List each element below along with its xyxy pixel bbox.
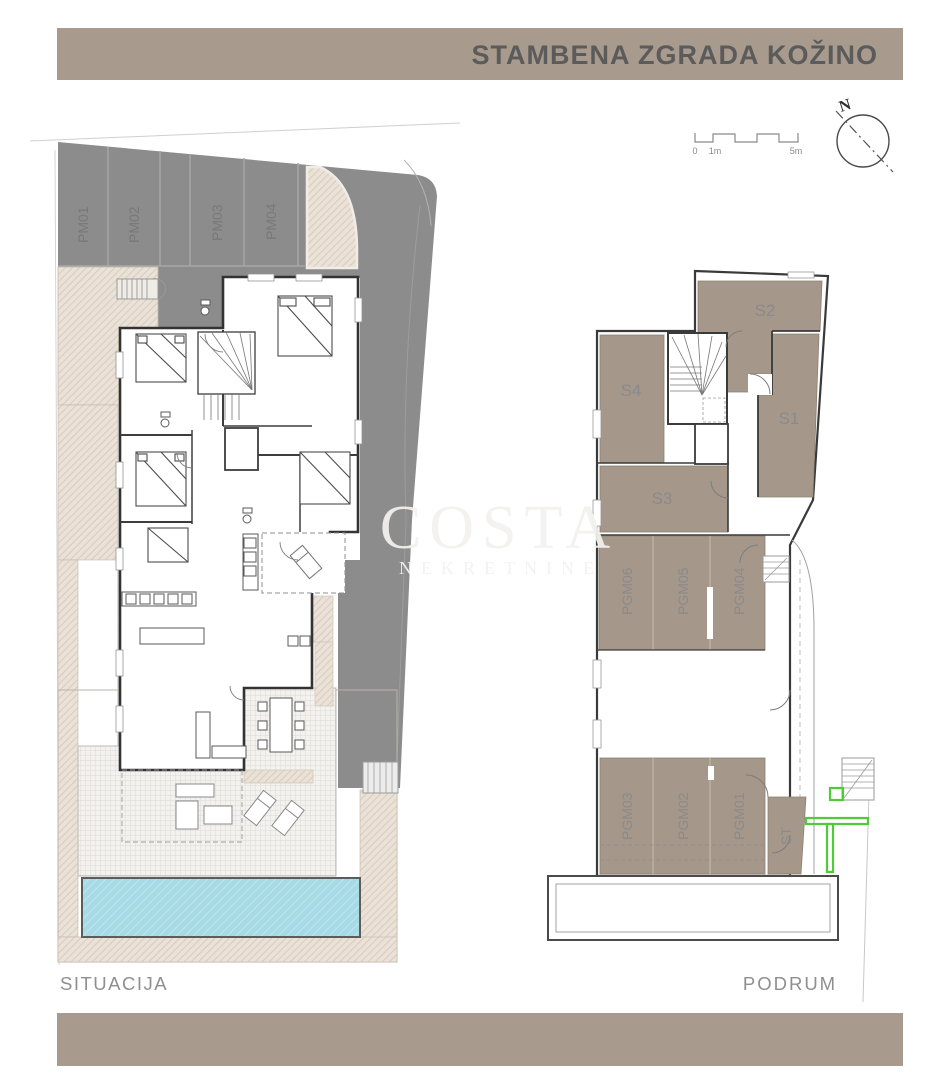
pillar-gap bbox=[708, 766, 714, 780]
bed bbox=[300, 452, 350, 504]
scale-label: 0 bbox=[692, 146, 697, 156]
footer-bar bbox=[57, 1013, 903, 1066]
dining-table bbox=[258, 698, 304, 752]
site-plan: PM01 PM02 PM03 PM04 bbox=[58, 142, 437, 994]
plan-drawing: STAMBENA ZGRADA KOŽINO PM01 PM02 PM03 PM… bbox=[0, 0, 938, 1080]
garage-label: PGM05 bbox=[675, 567, 691, 615]
room-label: S2 bbox=[755, 301, 776, 320]
terrace-step-hatch bbox=[315, 642, 333, 706]
side-strip-hatch bbox=[58, 405, 118, 560]
bed bbox=[278, 296, 332, 356]
watermark-subtitle: NEKRETNINE bbox=[399, 558, 603, 578]
room-label: S3 bbox=[652, 489, 673, 508]
garage-label: PGM03 bbox=[619, 792, 635, 840]
foundation-slab bbox=[548, 876, 838, 940]
floorplan-sheet: STAMBENA ZGRADA KOŽINO PM01 PM02 PM03 PM… bbox=[0, 0, 938, 1080]
scale-bar: 0 1m 5m bbox=[692, 133, 802, 156]
terrace-step-hatch bbox=[244, 770, 313, 783]
garage-label: PGM04 bbox=[731, 567, 747, 615]
room-label: S1 bbox=[779, 409, 800, 428]
basement-plan: S2 S4 S1 S3 PGM06 PGM05 PGM04 PGM03 PGM0… bbox=[548, 271, 874, 994]
garage-label: PGM02 bbox=[675, 792, 691, 840]
kitchen-island bbox=[140, 628, 204, 644]
garage-label: PGM06 bbox=[619, 567, 635, 615]
pool-surround-hatch bbox=[360, 790, 397, 962]
green-gate bbox=[806, 788, 868, 872]
page-title: STAMBENA ZGRADA KOŽINO bbox=[472, 39, 878, 70]
outdoor-stairs bbox=[842, 758, 874, 800]
road-stairs bbox=[363, 762, 398, 793]
room-label: S4 bbox=[621, 381, 642, 400]
north-label: N bbox=[837, 96, 854, 116]
north-arrow: N bbox=[836, 96, 893, 172]
scale-label: 1m bbox=[709, 146, 722, 156]
bed bbox=[148, 528, 188, 562]
parking-label: PM01 bbox=[75, 206, 91, 243]
basement-plan-caption: PODRUM bbox=[743, 973, 837, 994]
pool-surround-hatch bbox=[58, 937, 397, 962]
garage-stairs bbox=[763, 556, 789, 582]
watermark: COSTA NEKRETNINE bbox=[380, 494, 618, 578]
parking-label: PM02 bbox=[126, 206, 142, 243]
pillar-gap bbox=[707, 587, 713, 639]
scale-label: 5m bbox=[790, 146, 803, 156]
stairwell-label: ST bbox=[778, 827, 794, 845]
parking-label: PM04 bbox=[263, 203, 279, 240]
watermark-logo-text: COSTA bbox=[380, 494, 618, 562]
compass-needle bbox=[836, 111, 893, 172]
covered-terrace bbox=[262, 533, 345, 593]
parking-label: PM03 bbox=[209, 204, 225, 241]
basement-shaft bbox=[695, 424, 728, 464]
site-plan-caption: SITUACIJA bbox=[60, 973, 168, 994]
garage-label: PGM01 bbox=[731, 792, 747, 840]
basement-stairs bbox=[668, 333, 727, 424]
bed bbox=[136, 334, 186, 382]
swimming-pool bbox=[82, 878, 360, 937]
side-strip-hatch bbox=[58, 560, 78, 937]
scale-bar-shape bbox=[695, 133, 798, 142]
site-boundary-top bbox=[30, 123, 460, 141]
exterior-stairs bbox=[117, 279, 165, 299]
